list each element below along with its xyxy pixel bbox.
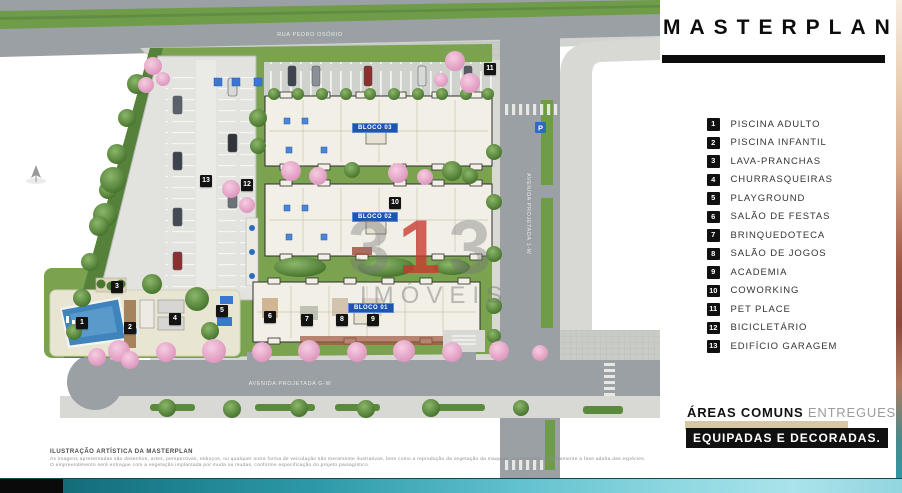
- legend-label: LAVA-PRANCHAS: [731, 156, 822, 167]
- legend-row-2: 2 PISCINA INFANTIL: [707, 134, 892, 153]
- equipadas-banner: EQUIPADAS E DECORADAS.: [686, 428, 888, 448]
- bloco-label-bloco-03: BLOCO 03: [352, 123, 398, 133]
- map-marker-12: 12: [241, 179, 253, 191]
- legend-number-badge: 7: [707, 229, 720, 242]
- disclaimer-body: As imagens apresentadas são desenhos, ar…: [50, 457, 650, 468]
- legend-row-4: 4 CHURRASQUEIRAS: [707, 171, 892, 190]
- legend-number-badge: 6: [707, 211, 720, 224]
- legend-row-12: 12 BICICLETÁRIO: [707, 319, 892, 338]
- legend-number-badge: 12: [707, 322, 720, 335]
- legend-label: CHURRASQUEIRAS: [731, 174, 833, 185]
- legend-label: SALÃO DE JOGOS: [731, 248, 827, 259]
- legend-number-badge: 11: [707, 303, 720, 316]
- bottom-strip-black-segment: [0, 479, 63, 493]
- legend-row-9: 9 ACADEMIA: [707, 263, 892, 282]
- legend-list: 1 PISCINA ADULTO 2 PISCINA INFANTIL 3 LA…: [707, 115, 892, 356]
- map-marker-3: 3: [111, 281, 123, 293]
- legend-label: PISCINA INFANTIL: [731, 137, 827, 148]
- map-marker-1: 1: [76, 317, 88, 329]
- map-marker-11: 11: [484, 63, 496, 75]
- map-marker-4: 4: [169, 313, 181, 325]
- bloco-label-bloco-01: BLOCO 01: [348, 303, 394, 313]
- bloco-label-bloco-02: BLOCO 02: [352, 212, 398, 222]
- legend-number-badge: 2: [707, 137, 720, 150]
- legend-number-badge: 3: [707, 155, 720, 168]
- areas-comuns-bold: ÁREAS COMUNS: [687, 405, 804, 420]
- map-marker-5: 5: [216, 305, 228, 317]
- map-marker-9: 9: [367, 314, 379, 326]
- street-label-avenida-projetada-gw: AVENIDA PROJETADA G-W: [228, 381, 352, 387]
- legend-label: SALÃO DE FESTAS: [731, 211, 831, 222]
- bottom-photo-strip: [0, 478, 902, 493]
- masterplan-map: P: [0, 0, 660, 478]
- legend-label: EDIFÍCIO GARAGEM: [731, 341, 838, 352]
- legend-label: PLAYGROUND: [731, 193, 806, 204]
- legend-row-13: 13 EDIFÍCIO GARAGEM: [707, 337, 892, 356]
- site-plan-illustration: P: [0, 0, 660, 478]
- right-edge-photo-strip: [896, 0, 902, 478]
- legend-number-badge: 13: [707, 340, 720, 353]
- legend-number-badge: 5: [707, 192, 720, 205]
- legend-row-3: 3 LAVA-PRANCHAS: [707, 152, 892, 171]
- map-marker-13: 13: [200, 175, 212, 187]
- map-marker-10: 10: [389, 197, 401, 209]
- legend-row-11: 11 PET PLACE: [707, 300, 892, 319]
- page-title: MASTERPLAN: [663, 16, 893, 40]
- legend-label: BICICLETÁRIO: [731, 322, 808, 333]
- svg-text:P: P: [538, 124, 543, 133]
- title-underline-bar: [662, 55, 885, 63]
- legend-label: ACADEMIA: [731, 267, 788, 278]
- legend-label: COWORKING: [731, 285, 800, 296]
- north-arrow-icon: [26, 165, 46, 184]
- legend-number-badge: 1: [707, 118, 720, 131]
- legend-number-badge: 9: [707, 266, 720, 279]
- legend-label: PISCINA ADULTO: [731, 119, 821, 130]
- page: P: [0, 0, 902, 493]
- disclaimer: ILUSTRAÇÃO ARTÍSTICA DA MASTERPLAN As im…: [50, 449, 650, 468]
- disclaimer-title: ILUSTRAÇÃO ARTÍSTICA DA MASTERPLAN: [50, 449, 650, 455]
- areas-comuns-line: ÁREAS COMUNS ENTREGUES: [687, 405, 896, 420]
- legend-row-6: 6 SALÃO DE FESTAS: [707, 208, 892, 227]
- legend-number-badge: 8: [707, 248, 720, 261]
- map-marker-2: 2: [124, 322, 136, 334]
- legend-row-8: 8 SALÃO DE JOGOS: [707, 245, 892, 264]
- legend-row-1: 1 PISCINA ADULTO: [707, 115, 892, 134]
- legend-label: BRINQUEDOTECA: [731, 230, 826, 241]
- legend-number-badge: 10: [707, 285, 720, 298]
- areas-comuns-light: ENTREGUES: [804, 405, 897, 420]
- map-marker-8: 8: [336, 314, 348, 326]
- legend-row-7: 7 BRINQUEDOTECA: [707, 226, 892, 245]
- legend-panel: MASTERPLAN 1 PISCINA ADULTO 2 PISCINA IN…: [660, 0, 896, 478]
- street-label-avenida-projetada-1w: AVENIDA PROJETADA 1-W: [525, 173, 531, 254]
- map-marker-6: 6: [264, 311, 276, 323]
- legend-label: PET PLACE: [731, 304, 791, 315]
- street-label-rua-pedro-osorio: RUA PEDRO OSÓRIO: [255, 32, 365, 38]
- map-marker-7: 7: [301, 314, 313, 326]
- legend-row-10: 10 COWORKING: [707, 282, 892, 301]
- legend-number-badge: 4: [707, 174, 720, 187]
- legend-row-5: 5 PLAYGROUND: [707, 189, 892, 208]
